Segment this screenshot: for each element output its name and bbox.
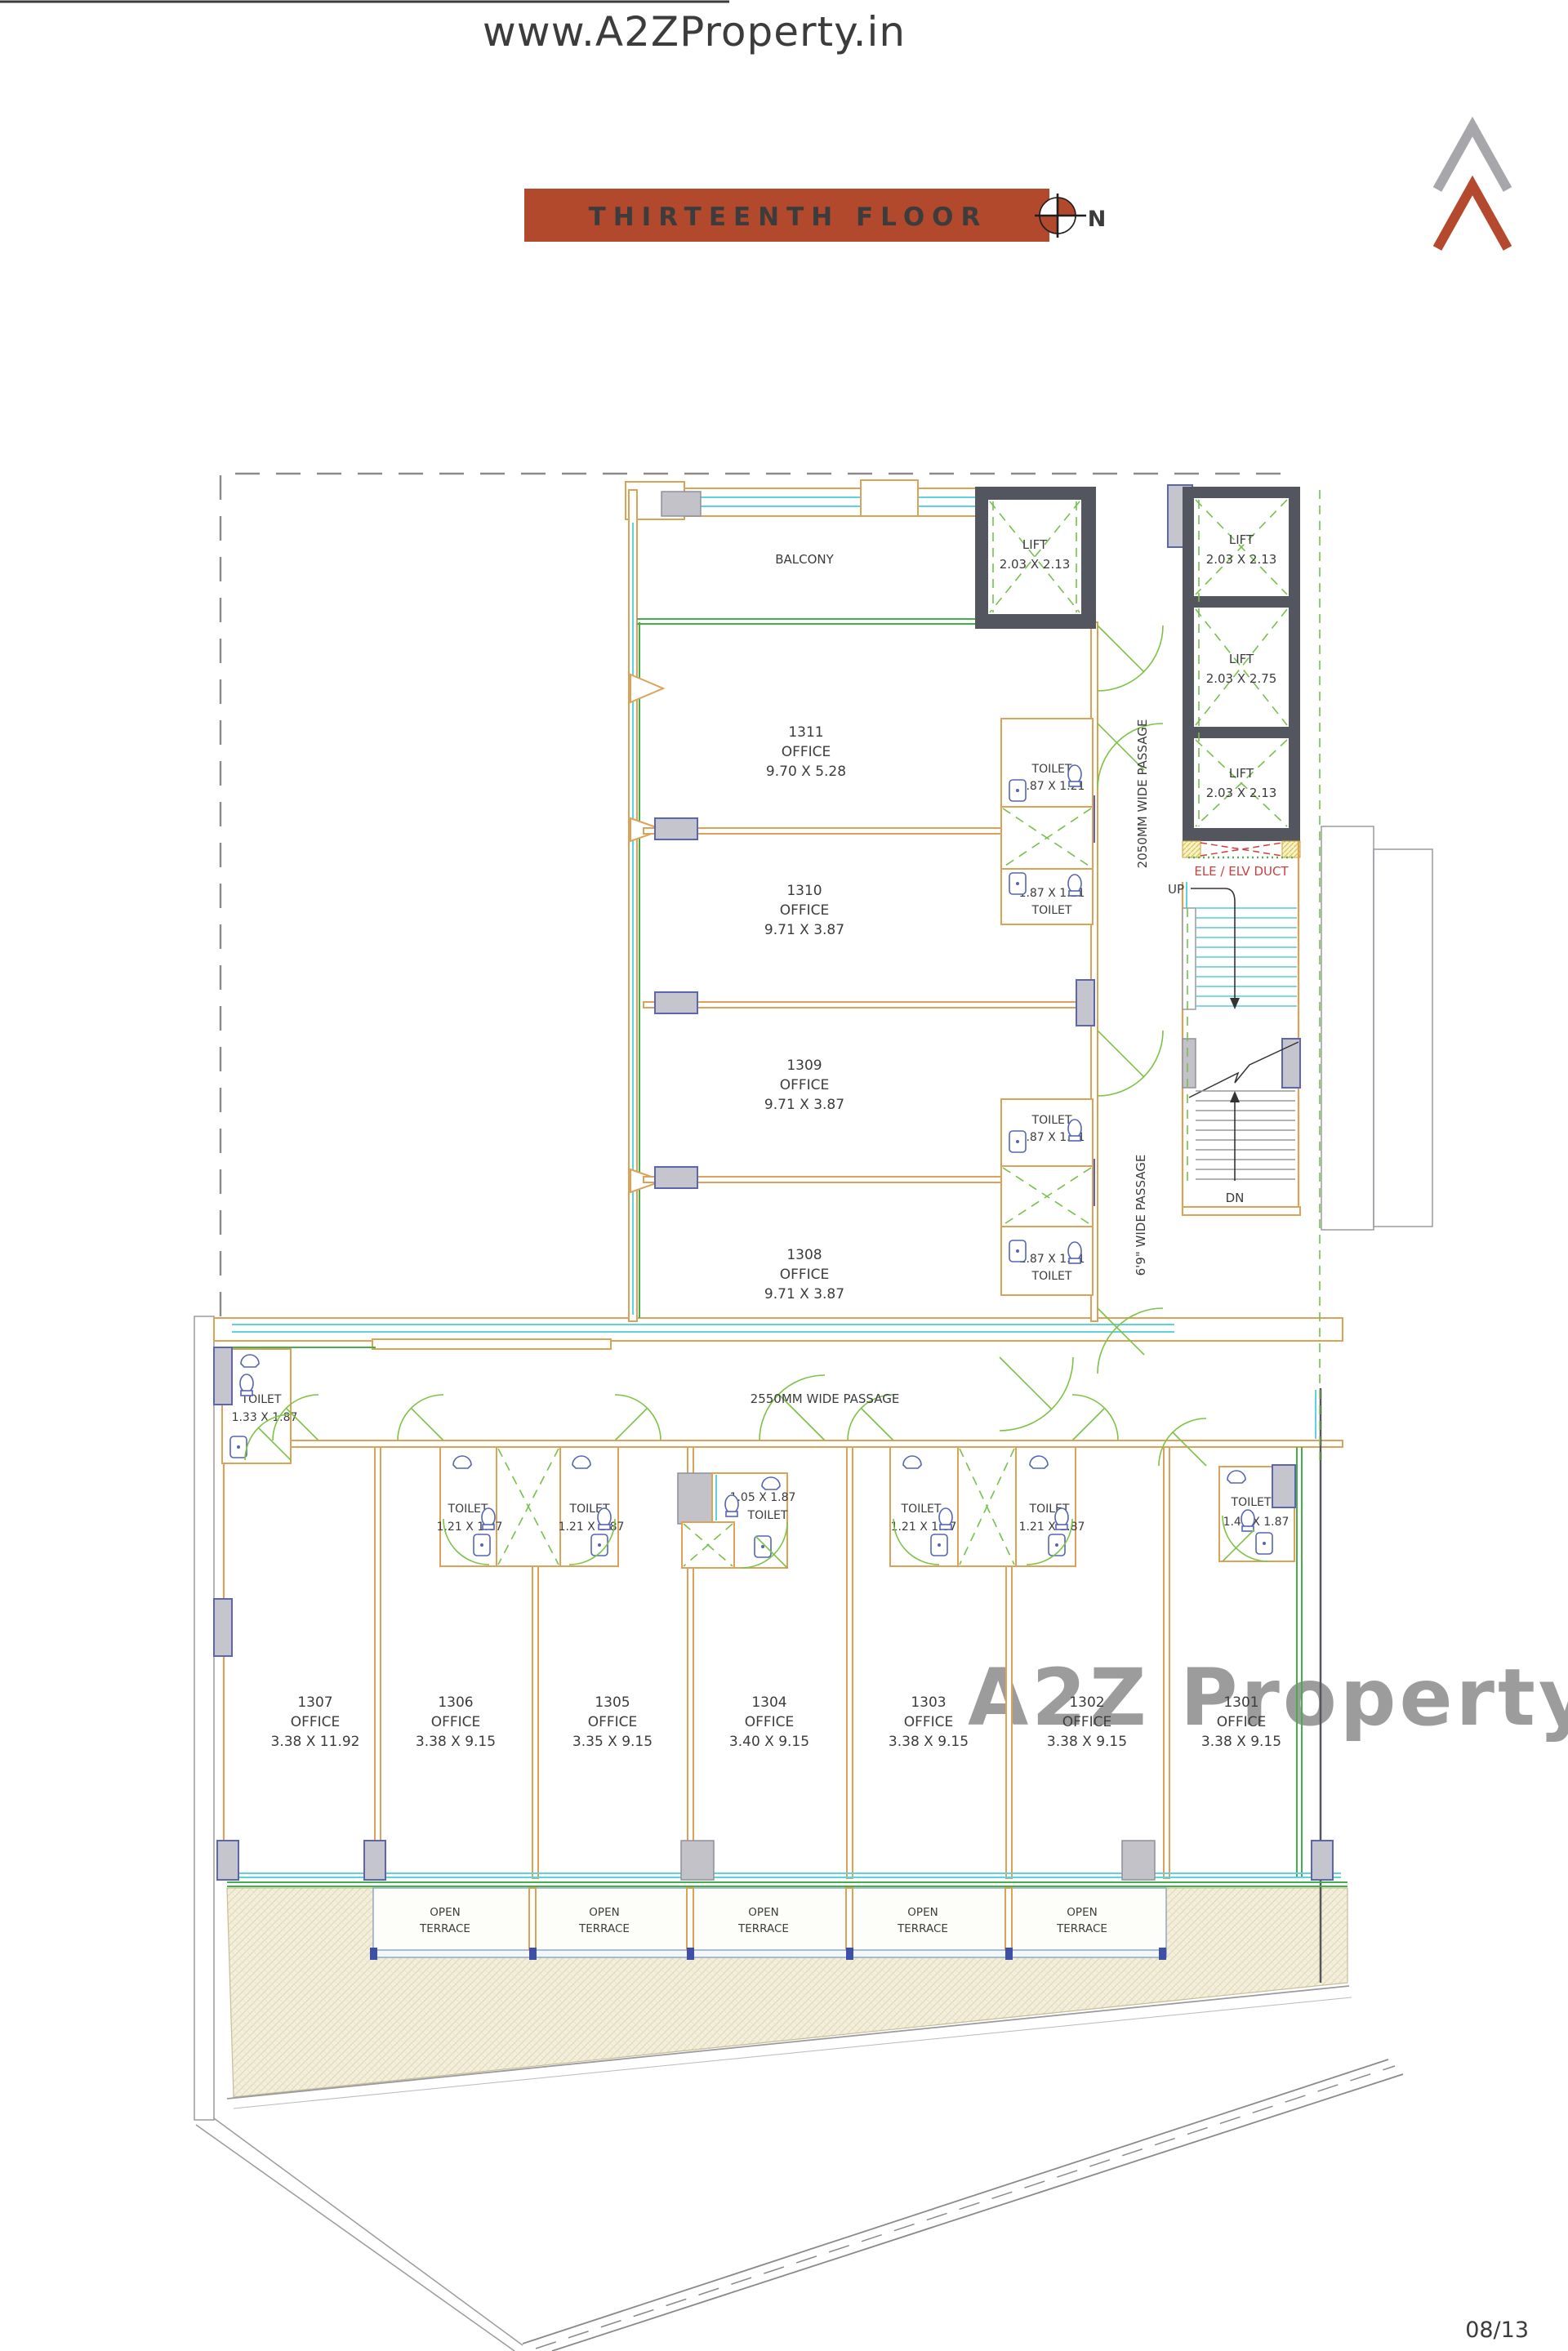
- office-1305-label: 1305 OFFICE 3.35 X 9.15: [572, 1694, 653, 1750]
- wc-icon: [1241, 1510, 1254, 1531]
- svg-text:OFFICE: OFFICE: [1217, 1714, 1267, 1730]
- lift-stack: LIFT 2.03 X 2.13 LIFT 2.03 X 2.75 LIFT 2…: [1183, 487, 1300, 841]
- office-1304-label: 1304 OFFICE 3.40 X 9.15: [729, 1694, 809, 1750]
- north-wall-column-2: [861, 480, 918, 516]
- stair-dn-label: DN: [1226, 1191, 1245, 1205]
- toilet-1304-dim: 1.05 X 1.87: [730, 1491, 796, 1504]
- brand-logo-icon: [1437, 127, 1508, 248]
- toilet-1303-label: TOILET: [901, 1503, 942, 1516]
- svg-text:OFFICE: OFFICE: [1062, 1714, 1112, 1730]
- north-wall-jog: [372, 1339, 611, 1349]
- lift-2-dim: 2.03 X 2.75: [1206, 671, 1277, 686]
- wc-icon: [482, 1508, 495, 1529]
- svg-text:1310: 1310: [786, 883, 822, 899]
- room-labels: BALCONY 1311 OFFICE 9.70 X 5.28 1310 OFF…: [271, 552, 1282, 1750]
- passage-69-label: 6'9" WIDE PASSAGE: [1134, 1155, 1148, 1276]
- toilet-a1-label: TOILET: [1031, 763, 1072, 776]
- wc-icon: [1068, 1120, 1081, 1141]
- stair-upper-treads: [1196, 908, 1297, 1006]
- floor-plan-drawing: www.A2ZProperty.in A2Z Property 08/13 TH…: [0, 0, 1568, 2351]
- sink-icon: [1009, 1131, 1026, 1152]
- floor-plan-page: www.A2ZProperty.in A2Z Property 08/13 TH…: [0, 0, 1568, 2351]
- toilet-pair-2: TOILET 1.21 X 1.87 TOILET 1.21 X 1.87: [890, 1447, 1085, 1566]
- sink-icon: [1009, 780, 1026, 801]
- basin-icon: [241, 1355, 259, 1367]
- svg-text:3.38 X 11.92: 3.38 X 11.92: [271, 1734, 360, 1750]
- toilet-1301-dim: 1.48 X 1.87: [1223, 1516, 1290, 1529]
- wc-icon: [939, 1508, 952, 1529]
- svg-text:OFFICE: OFFICE: [780, 1077, 830, 1093]
- wc-icon: [1055, 1508, 1068, 1529]
- open-terrace-row: OPEN TERRACE OPEN TERRACE OPEN TERRACE O…: [370, 1888, 1166, 1960]
- office-1308-label: 1308 OFFICE 9.71 X 3.87: [764, 1247, 844, 1302]
- sink-icon: [230, 1436, 247, 1458]
- svg-text:OFFICE: OFFICE: [291, 1714, 341, 1730]
- office-1303-label: 1303 OFFICE 3.38 X 9.15: [889, 1694, 969, 1750]
- basin-icon: [1030, 1456, 1048, 1468]
- balcony-label: BALCONY: [775, 552, 834, 567]
- terrace-4-line1: OPEN: [907, 1906, 938, 1919]
- upper-toilet-block-a: TOILET 1.87 X 1.21 1.87 X 1.21 TOILET: [1001, 719, 1093, 924]
- office-1306-label: 1306 OFFICE 3.38 X 9.15: [416, 1694, 496, 1750]
- toilet-a2-label: TOILET: [1031, 904, 1072, 917]
- stair-up-path-line: [1191, 888, 1235, 1000]
- passage-2550-label: 2550MM WIDE PASSAGE: [751, 1391, 900, 1406]
- passage-2050-label: 2050MM WIDE PASSAGE: [1135, 719, 1150, 869]
- road: [523, 2059, 1403, 2351]
- svg-text:OFFICE: OFFICE: [782, 744, 831, 760]
- svg-text:1303: 1303: [911, 1694, 946, 1711]
- sink-icon: [474, 1534, 490, 1556]
- svg-text:3.38 X 9.15: 3.38 X 9.15: [416, 1734, 496, 1750]
- basin-icon: [903, 1456, 921, 1468]
- svg-text:1309: 1309: [786, 1058, 822, 1074]
- lift-1-dim: 2.03 X 2.13: [1206, 552, 1277, 567]
- svg-text:1304: 1304: [751, 1694, 786, 1711]
- toilet-1304-label: TOILET: [747, 1509, 788, 1522]
- svg-text:OFFICE: OFFICE: [588, 1714, 638, 1730]
- svg-text:1307: 1307: [297, 1694, 332, 1711]
- svg-text:3.38 X 9.15: 3.38 X 9.15: [1201, 1734, 1281, 1750]
- basin-icon: [1227, 1471, 1245, 1483]
- lift-3-dim: 2.03 X 2.13: [1206, 786, 1277, 800]
- office-1309-label: 1309 OFFICE 9.71 X 3.87: [764, 1058, 844, 1113]
- lift-north-dim: 2.03 X 2.13: [1000, 557, 1071, 572]
- toilet-mid-1304: 1.05 X 1.87 TOILET: [678, 1473, 795, 1568]
- svg-text:1305: 1305: [595, 1694, 630, 1711]
- svg-text:3.38 X 9.15: 3.38 X 9.15: [1047, 1734, 1127, 1750]
- terrace-5-line1: OPEN: [1067, 1906, 1097, 1919]
- sink-icon: [1009, 873, 1026, 894]
- passage-door-arcs: [273, 1357, 1118, 1440]
- page-title: THIRTEENTH FLOOR: [589, 203, 988, 232]
- svg-text:3.35 X 9.15: 3.35 X 9.15: [572, 1734, 653, 1750]
- stair-up-label: UP: [1168, 882, 1184, 897]
- terrace-4-line2: TERRACE: [897, 1922, 948, 1935]
- svg-text:3.40 X 9.15: 3.40 X 9.15: [729, 1734, 809, 1750]
- sink-icon: [931, 1534, 947, 1556]
- svg-text:OFFICE: OFFICE: [780, 902, 830, 919]
- wc-icon: [1068, 875, 1081, 896]
- svg-text:9.71 X 3.87: 9.71 X 3.87: [764, 1097, 844, 1113]
- svg-text:1308: 1308: [786, 1247, 822, 1263]
- wc-icon: [1068, 765, 1081, 786]
- office-1311-label: 1311 OFFICE 9.70 X 5.28: [766, 724, 846, 780]
- office-1307-label: 1307 OFFICE 3.38 X 11.92: [271, 1694, 360, 1750]
- svg-text:1311: 1311: [788, 724, 823, 741]
- stair-rail: [1183, 908, 1196, 1009]
- north-label: N: [1088, 207, 1107, 232]
- stair-lower-treads: [1196, 1091, 1295, 1179]
- terrace-2-line2: TERRACE: [578, 1922, 630, 1935]
- terrace-1-line1: OPEN: [430, 1906, 460, 1919]
- toilet-b2-label: TOILET: [1031, 1270, 1072, 1283]
- east-outer-ledges: [1316, 490, 1432, 1460]
- terrace-2-line1: OPEN: [589, 1906, 619, 1919]
- terrace-3-line2: TERRACE: [737, 1922, 789, 1935]
- office-row-top-wall: [252, 1440, 1343, 1447]
- sink-icon: [1009, 1240, 1026, 1262]
- stair-up-arrowhead: [1230, 1091, 1240, 1102]
- toilet-b1-label: TOILET: [1031, 1114, 1072, 1127]
- toilet-1301-label: TOILET: [1231, 1496, 1272, 1509]
- lift-3-label: LIFT: [1229, 766, 1254, 781]
- lift-north: LIFT 2.03 X 2.13: [975, 485, 1192, 629]
- terrace-1-line2: TERRACE: [419, 1922, 470, 1935]
- svg-text:OFFICE: OFFICE: [431, 1714, 481, 1730]
- wc-icon: [598, 1508, 611, 1529]
- svg-text:9.71 X 3.87: 9.71 X 3.87: [764, 922, 844, 938]
- lift-north-label: LIFT: [1022, 537, 1048, 552]
- toilet-left: TOILET 1.33 X 1.87: [214, 1347, 297, 1463]
- upper-toilet-block-b: TOILET 1.87 X 1.21 1.87 X 1.21 TOILET: [1001, 1099, 1093, 1295]
- toilet-pair-1: TOILET 1.21 X 1.87 TOILET 1.21 X 1.87: [437, 1447, 625, 1566]
- svg-text:1302: 1302: [1069, 1694, 1104, 1711]
- lift-1-label: LIFT: [1229, 532, 1254, 547]
- lower-north-wall: [214, 1318, 1343, 1341]
- svg-text:3.38 X 9.15: 3.38 X 9.15: [889, 1734, 969, 1750]
- wc-icon: [725, 1495, 738, 1516]
- basin-icon: [762, 1477, 780, 1489]
- staircase: UP DN: [1168, 841, 1300, 1215]
- center-watermark: A2Z Property: [968, 1652, 1568, 1743]
- terrace-3-line1: OPEN: [748, 1906, 778, 1919]
- upper-door-arcs: [1098, 626, 1163, 1374]
- ele-elv-duct: ELE / ELV DUCT: [1183, 841, 1300, 879]
- svg-text:9.71 X 3.87: 9.71 X 3.87: [764, 1286, 844, 1302]
- page-number: 08/13: [1465, 2318, 1529, 2343]
- wc-icon: [240, 1374, 253, 1396]
- svg-text:OFFICE: OFFICE: [780, 1267, 830, 1283]
- svg-text:9.70 X 5.28: 9.70 X 5.28: [766, 764, 846, 780]
- stair-down-arrowhead: [1230, 998, 1240, 1009]
- sink-icon: [1256, 1533, 1272, 1554]
- west-outer-wall: [194, 1316, 214, 2120]
- terrace-5-line2: TERRACE: [1056, 1922, 1107, 1935]
- svg-text:1306: 1306: [438, 1694, 473, 1711]
- office-1310-label: 1310 OFFICE 9.71 X 3.87: [764, 883, 844, 938]
- north-gray-column: [661, 492, 701, 516]
- title-bar: THIRTEENTH FLOOR: [524, 189, 1049, 242]
- lift-2-label: LIFT: [1229, 652, 1254, 666]
- svg-text:OFFICE: OFFICE: [904, 1714, 954, 1730]
- basin-icon: [453, 1456, 471, 1468]
- svg-text:1301: 1301: [1223, 1694, 1258, 1711]
- top-watermark: www.A2ZProperty.in: [483, 8, 906, 56]
- svg-text:OFFICE: OFFICE: [745, 1714, 795, 1730]
- wc-icon: [1068, 1242, 1081, 1263]
- toilet-1302-dim: 1.21 X 1.87: [1019, 1521, 1085, 1534]
- sink-icon: [755, 1536, 771, 1557]
- duct-label: ELE / ELV DUCT: [1194, 864, 1289, 879]
- basin-icon: [572, 1456, 590, 1468]
